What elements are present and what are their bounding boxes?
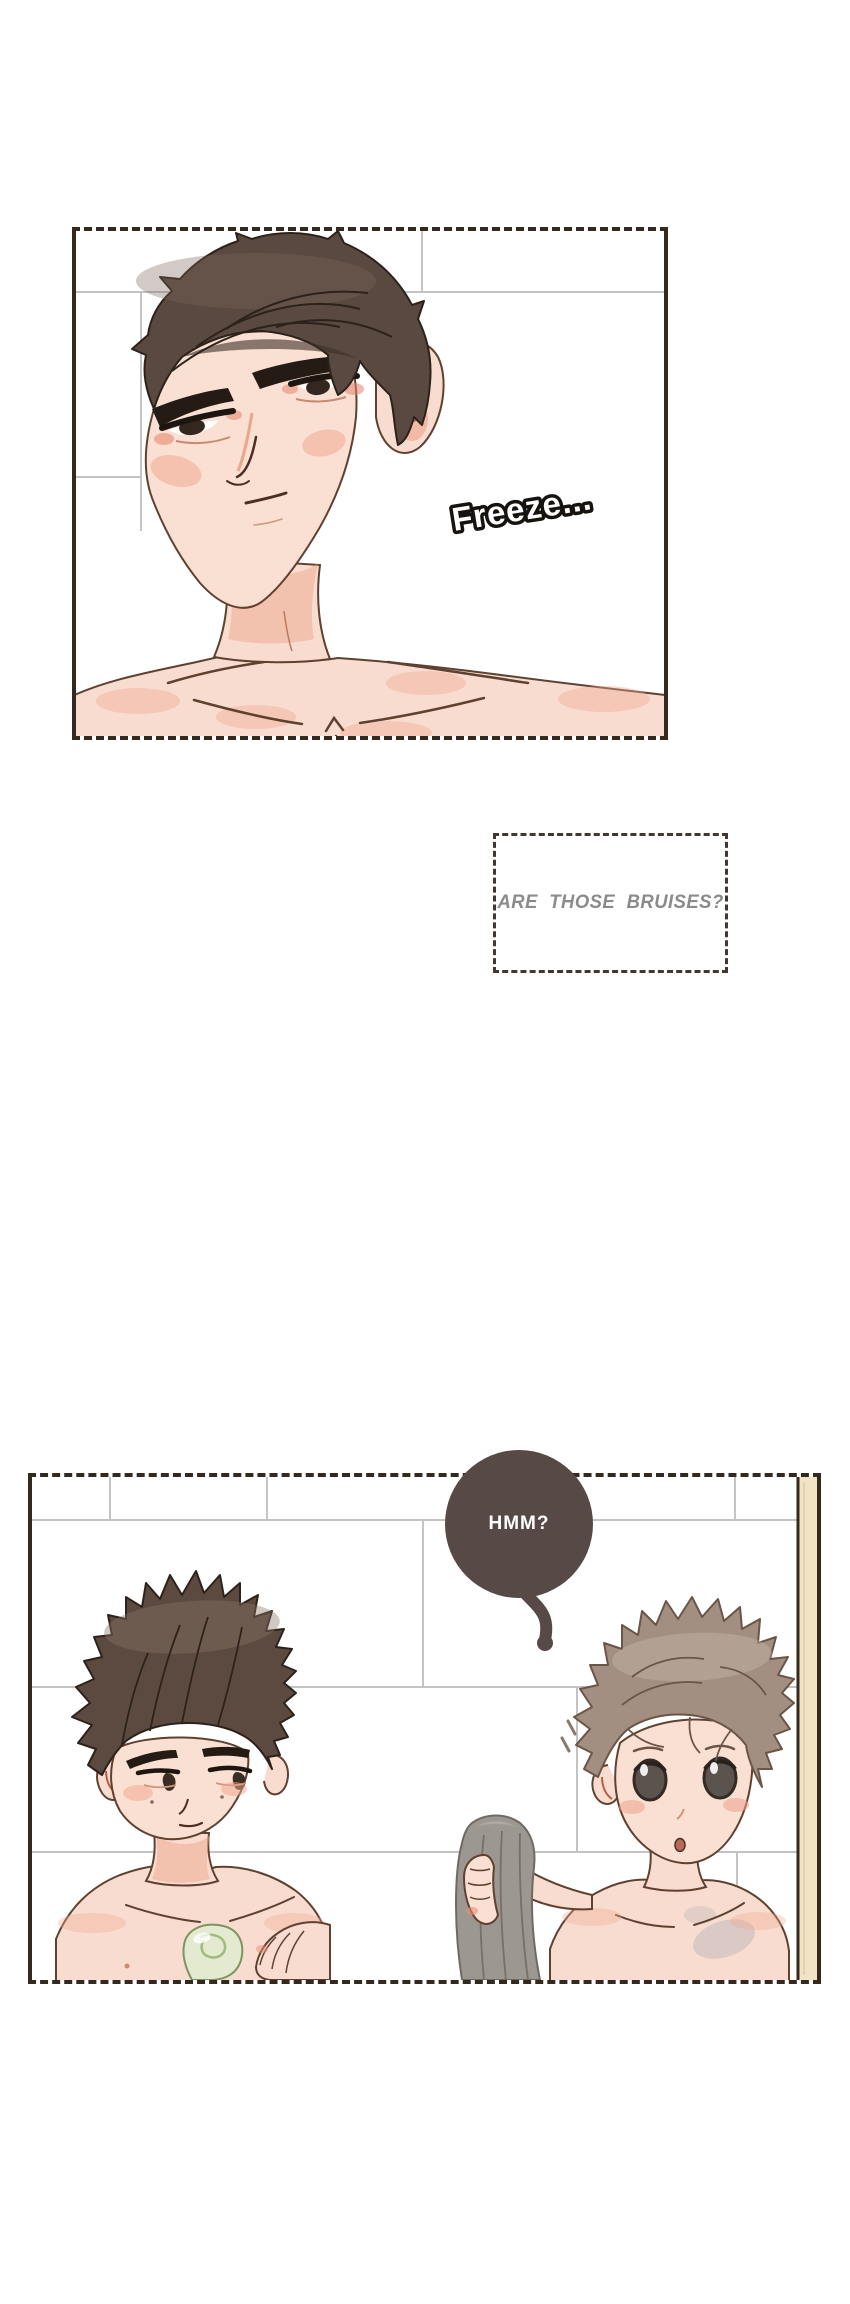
- freeze-sfx-text: Freeze...: [449, 479, 594, 538]
- speech-bubble: HMM?: [445, 1450, 593, 1598]
- speech-bubble-text: HMM?: [489, 1513, 550, 1535]
- narration-box: ARE THOSE BRUISES?: [493, 833, 728, 973]
- soap-bar: [183, 1925, 242, 1980]
- narration-text: ARE THOSE BRUISES?: [497, 892, 723, 914]
- man-closeup-illustration: Freeze...: [76, 231, 664, 736]
- surprise-dashes: [562, 1721, 575, 1751]
- boy-right: [456, 1597, 794, 1980]
- speech-bubble-tail: [512, 1588, 582, 1658]
- wall-trim: [798, 1477, 817, 1980]
- two-characters-illustration: [32, 1477, 817, 1980]
- boy-left: [56, 1571, 330, 1980]
- boy-right-hand: [464, 1855, 498, 1924]
- man-torso: [76, 652, 664, 736]
- panel-man-closeup: Freeze...: [72, 227, 668, 740]
- comic-page: Freeze... ARE THOSE BRUISES?: [0, 0, 850, 2304]
- panel-two-characters: [28, 1473, 821, 1984]
